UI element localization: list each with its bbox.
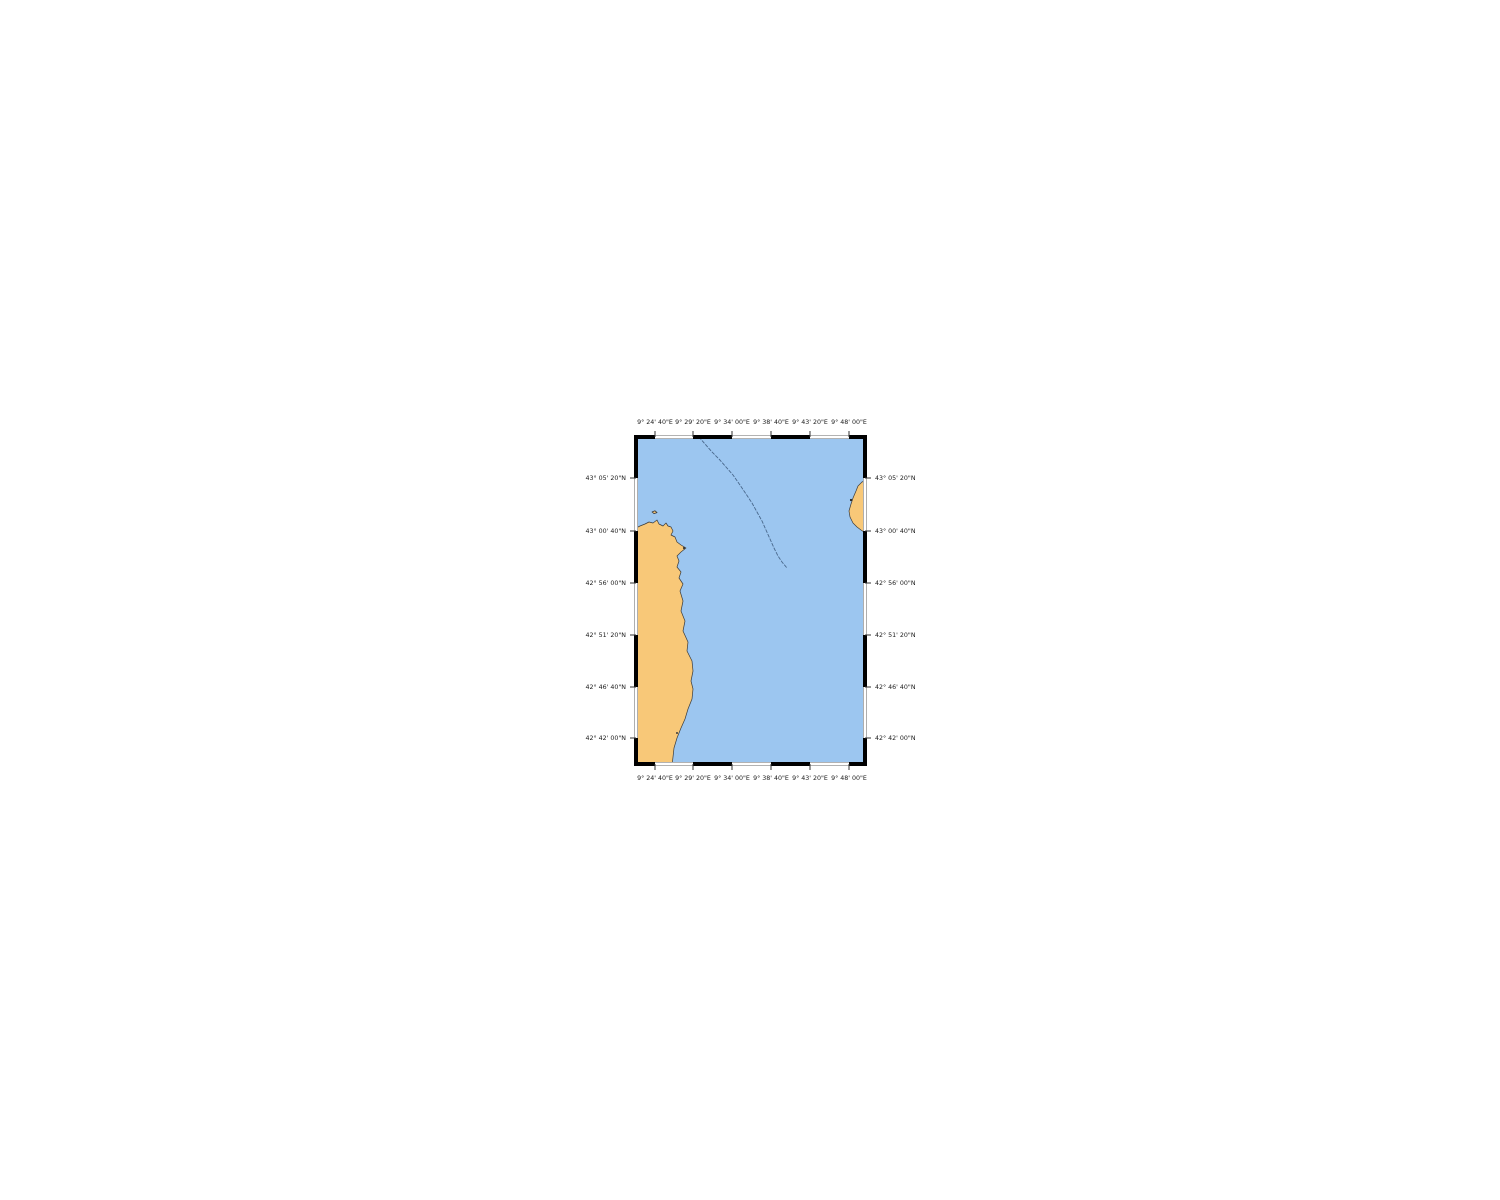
lat-label: 42° 42' 00"N — [585, 734, 626, 742]
lat-label: 42° 51' 20"N — [585, 631, 626, 639]
map-chart: 9° 24' 40"E 9° 29' 20"E 9° 34' 00"E 9° 3… — [560, 395, 920, 805]
lon-label: 9° 38' 40"E — [753, 774, 789, 782]
lon-label: 9° 34' 00"E — [714, 774, 750, 782]
lat-label: 42° 56' 00"N — [585, 579, 626, 587]
lat-label: 43° 05' 20"N — [875, 474, 916, 482]
lon-label: 9° 29' 20"E — [675, 774, 711, 782]
lon-label: 9° 24' 40"E — [637, 774, 673, 782]
coastal-rock-dot — [676, 732, 678, 734]
longitude-labels-bottom: 9° 24' 40"E 9° 29' 20"E 9° 34' 00"E 9° 3… — [637, 774, 867, 782]
lat-label: 42° 46' 40"N — [585, 683, 626, 691]
lat-label: 42° 42' 00"N — [875, 734, 916, 742]
lon-label: 9° 24' 40"E — [637, 418, 673, 426]
lon-label: 9° 48' 00"E — [831, 774, 867, 782]
latitude-labels-left: 43° 05' 20"N 43° 00' 40"N 42° 56' 00"N 4… — [585, 474, 626, 742]
lon-label: 9° 29' 20"E — [675, 418, 711, 426]
lon-label: 9° 43' 20"E — [792, 418, 828, 426]
page-background: 9° 24' 40"E 9° 29' 20"E 9° 34' 00"E 9° 3… — [0, 0, 1500, 1200]
island-mark-dot — [850, 499, 852, 501]
lon-label: 9° 48' 00"E — [831, 418, 867, 426]
lat-label: 43° 00' 40"N — [875, 527, 916, 535]
lat-label: 42° 56' 00"N — [875, 579, 916, 587]
islet-off-cape-dot — [683, 547, 685, 549]
longitude-labels-top: 9° 24' 40"E 9° 29' 20"E 9° 34' 00"E 9° 3… — [637, 418, 867, 426]
latitude-labels-right: 43° 05' 20"N 43° 00' 40"N 42° 56' 00"N 4… — [875, 474, 916, 742]
lon-label: 9° 38' 40"E — [753, 418, 789, 426]
lat-label: 42° 51' 20"N — [875, 631, 916, 639]
lon-label: 9° 43' 20"E — [792, 774, 828, 782]
lat-label: 42° 46' 40"N — [875, 683, 916, 691]
lat-label: 43° 00' 40"N — [585, 527, 626, 535]
lon-label: 9° 34' 00"E — [714, 418, 750, 426]
lat-label: 43° 05' 20"N — [585, 474, 626, 482]
